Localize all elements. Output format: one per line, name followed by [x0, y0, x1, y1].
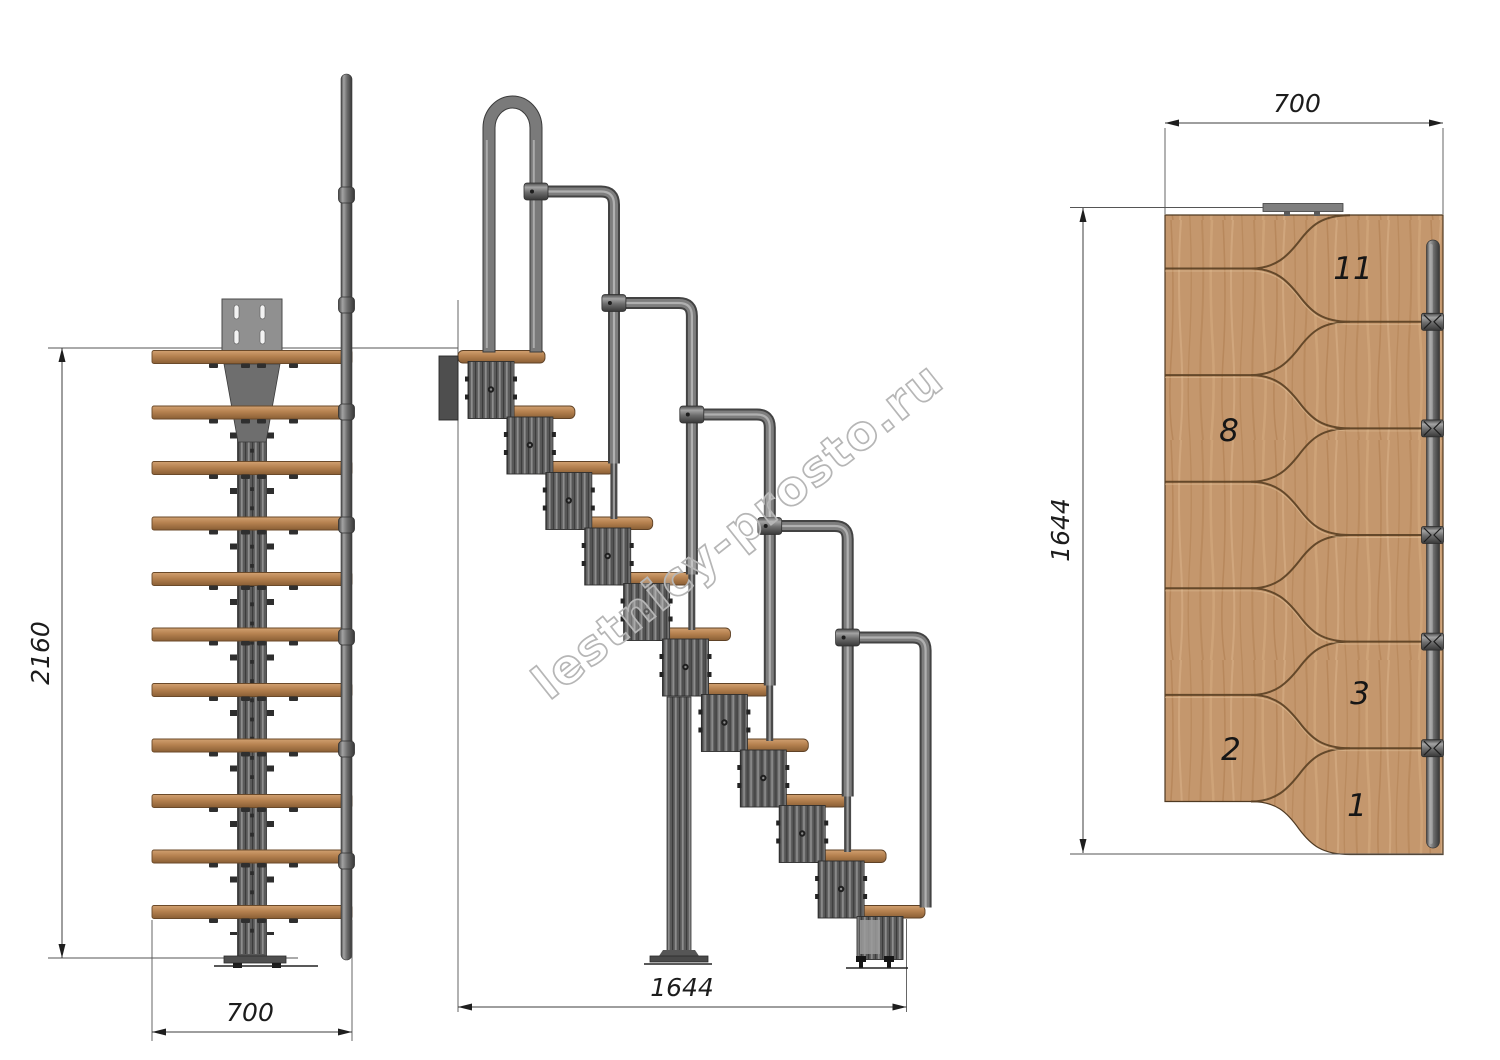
post-collar	[339, 297, 355, 313]
module-block	[543, 473, 595, 530]
clamp-fitting	[1422, 527, 1444, 544]
clamp-fitting	[1422, 740, 1444, 757]
post-collar	[339, 517, 355, 533]
module-block	[698, 695, 750, 752]
staircase-technical-drawing: 2160 700	[0, 0, 1500, 1060]
dimension-length: 1644	[458, 973, 907, 1011]
drawing-page: 2160 700	[0, 0, 1500, 1060]
mounting-plate	[222, 299, 282, 352]
plan-mounting-plate	[1263, 204, 1343, 212]
tread-number-label: 8	[1219, 413, 1239, 449]
post-collar	[339, 187, 355, 203]
pole-base	[650, 956, 708, 962]
tread-number-label: 3	[1350, 676, 1370, 712]
module-block	[660, 639, 712, 696]
base-plate	[224, 956, 286, 963]
post-collar	[339, 629, 355, 645]
plate-slot	[234, 305, 239, 319]
plate-slot	[234, 330, 239, 344]
wall-bracket	[439, 356, 458, 420]
module-block	[582, 528, 634, 585]
dim-label-700-plan: 700	[1273, 89, 1321, 118]
clamp-fitting	[1422, 420, 1444, 437]
anchor-bolt	[856, 956, 866, 962]
dim-label-1644-side: 1644	[650, 973, 714, 1002]
support-pole	[667, 697, 691, 956]
tread-number-label: 11	[1333, 251, 1372, 287]
module-block	[776, 806, 828, 863]
front-elevation-view: 2160 700	[26, 74, 458, 1041]
dimension-plan-width: 700	[1165, 89, 1443, 214]
post-collar	[339, 853, 355, 869]
post-collar	[339, 404, 355, 420]
post-collar	[339, 741, 355, 757]
anchor-bolt	[884, 956, 894, 962]
module-block	[504, 417, 556, 474]
dimension-height: 2160	[26, 348, 66, 958]
plate-leg	[1284, 212, 1290, 217]
taper-bracket	[224, 364, 280, 442]
module-block	[815, 861, 867, 918]
clamp-fitting	[1422, 633, 1444, 650]
pole-neck	[659, 950, 699, 956]
plate-leg	[1314, 212, 1320, 217]
dim-label-1644-plan: 1644	[1046, 498, 1075, 562]
plate-slot	[260, 330, 265, 344]
plate-slot	[260, 305, 265, 319]
anchor-bolt	[859, 962, 863, 968]
dim-label-2160: 2160	[26, 621, 55, 685]
tread-number-label: 2	[1221, 732, 1241, 768]
anchor-bolt	[887, 962, 891, 968]
clamp-fitting	[1422, 313, 1444, 330]
module-panel	[860, 920, 880, 954]
plan-view: 11 8 3 2 1 700	[1046, 89, 1444, 855]
module-block	[737, 750, 789, 807]
tread-number-label: 1	[1347, 788, 1367, 824]
module-block	[465, 362, 517, 419]
dim-label-700-front: 700	[226, 998, 274, 1027]
